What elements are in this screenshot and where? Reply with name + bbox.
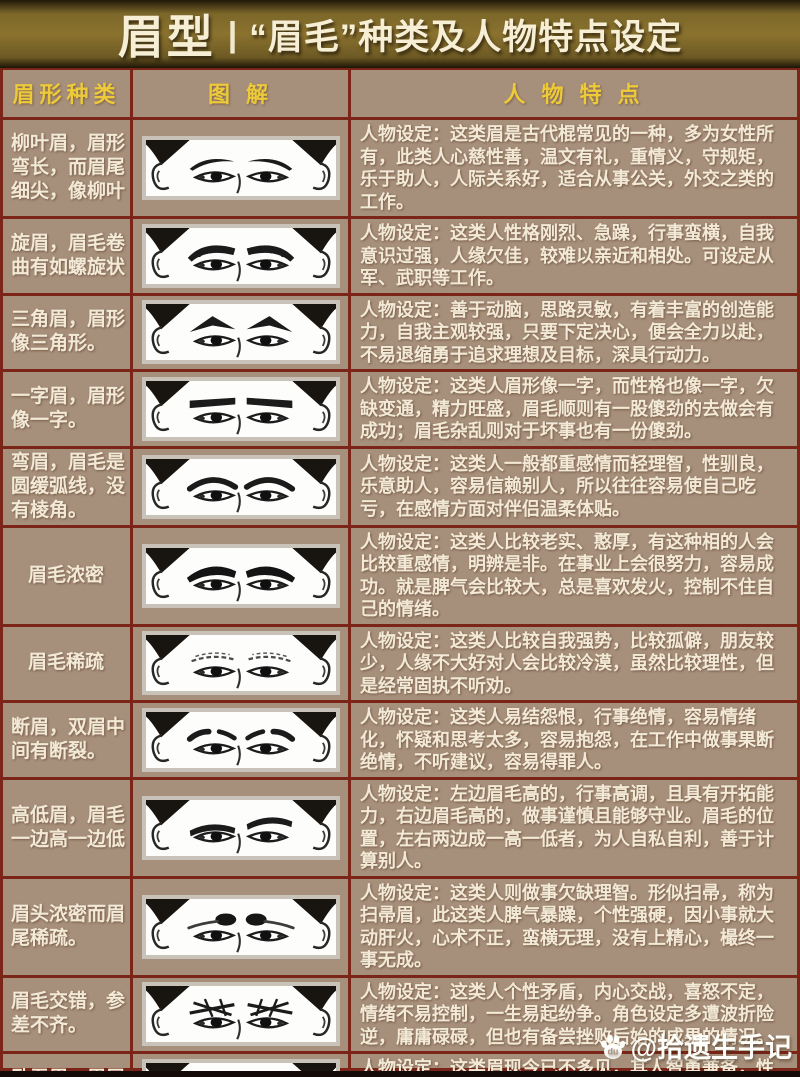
character-traits-text: 人物设定：善于动脑，思路灵敏，有着丰富的创造能力，自我主观较强，只要下定决心，便… <box>348 296 797 370</box>
face-sketch-icon <box>146 548 336 604</box>
eyebrow-illustration <box>130 449 348 525</box>
column-header-traits: 人 物 特 点 <box>348 70 797 117</box>
face-sketch-icon <box>146 304 336 360</box>
character-traits-text: 人物设定：这类人一般都重感情而轻理智，性驯良，乐意助人，容易信赖别人，所以往往容… <box>348 449 797 525</box>
face-sketch-icon <box>146 140 336 196</box>
table-row: 断眉，双眉中间有断裂。人物设定：这类人易结怨恨，行事绝情，容易情绪化，怀疑和思考… <box>3 703 797 780</box>
face-sketch-icon <box>146 986 336 1042</box>
character-traits-text: 人物设定：这类人比较自我强势，比较孤僻，朋友较少，人缘不大好对人会比较冷漠，虽然… <box>348 627 797 701</box>
eyebrow-type-label: 旋眉，眉毛卷曲有如螺旋状 <box>3 219 130 293</box>
face-sketch-icon <box>146 800 336 856</box>
table-row: 三角眉，眉形像三角形。人物设定：善于动脑，思路灵敏，有着丰富的创造能力，自我主观… <box>3 296 797 373</box>
title-separator: | <box>228 16 238 55</box>
table-row: 一字眉，眉形像一字。人物设定：这类人眉形像一字，而性格也像一字，欠缺变通，精力旺… <box>3 372 797 449</box>
face-sketch-icon <box>146 899 336 955</box>
svg-text:du: du <box>607 1046 618 1056</box>
table-body: 柳叶眉，眉形弯长，而眉尾细尖，像柳叶人物设定：这类眉是古代棍常见的一种，多为女性… <box>3 120 797 1077</box>
eyebrow-table: 眉形种类 图 解 人 物 特 点 柳叶眉，眉形弯长，而眉尾细尖，像柳叶人物设定：… <box>0 68 800 1071</box>
page-title-secondary: “眉毛”种类及人物特点设定 <box>249 9 682 60</box>
eyebrow-illustration <box>130 879 348 975</box>
eyebrow-type-label: 眉毛稀疏 <box>3 627 130 701</box>
eyebrow-illustration <box>130 372 348 446</box>
eyebrow-type-label: 一字眉，眉形像一字。 <box>3 372 130 446</box>
watermark-handle: @拾遗生手记 <box>631 1026 792 1065</box>
character-traits-text: 人物设定：这类人易结怨恨，行事绝情，容易情绪化，怀疑和思考太多，容易抱怨，在工作… <box>348 703 797 777</box>
face-sketch-icon <box>146 228 336 284</box>
face-sketch-icon <box>146 712 336 768</box>
face-sketch-icon <box>146 459 336 515</box>
table-row: 旋眉，眉毛卷曲有如螺旋状人物设定：这类人性格刚烈、急躁，行事蛮横，自我意识过强，… <box>3 219 797 296</box>
eyebrow-illustration <box>130 780 348 876</box>
eyebrow-illustration <box>130 978 348 1052</box>
character-traits-text: 人物设定：这类眉是古代棍常见的一种，多为女性所有，此类人心慈性善，温文有礼，重情… <box>348 120 797 216</box>
table-header-row: 眉形种类 图 解 人 物 特 点 <box>3 70 797 120</box>
table-row: 眉毛浓密人物设定：这类人比较老实、憨厚，有这种相的人会比较重感情，明辨是非。在事… <box>3 528 797 627</box>
eyebrow-illustration <box>130 627 348 701</box>
eyebrow-type-label: 弯眉，眉毛是圆缓弧线，没有棱角。 <box>3 449 130 525</box>
eyebrow-illustration <box>130 296 348 370</box>
eyebrow-type-label: 三角眉，眉形像三角形。 <box>3 296 130 370</box>
bottom-strip <box>0 1071 800 1077</box>
character-traits-text: 人物设定：这类人比较老实、憨厚，有这种相的人会比较重感情，明辨是非。在事业上会很… <box>348 528 797 624</box>
eyebrow-type-label: 眉头浓密而眉尾稀疏。 <box>3 879 130 975</box>
eyebrow-type-label: 柳叶眉，眉形弯长，而眉尾细尖，像柳叶 <box>3 120 130 216</box>
eyebrow-illustration <box>130 120 348 216</box>
face-sketch-icon <box>146 381 336 437</box>
character-traits-text: 人物设定：这类人眉形像一字，而性格也像一字，欠缺变通，精力旺盛，眉毛顺则有一股傻… <box>348 372 797 446</box>
eyebrow-type-label: 断眉，双眉中间有断裂。 <box>3 703 130 777</box>
table-row: 眉头浓密而眉尾稀疏。人物设定：这类人则做事欠缺理智。形似扫帚，称为扫帚眉，此这类… <box>3 879 797 978</box>
page-title-primary: 眉型 <box>118 1 216 67</box>
table-row: 高低眉，眉毛一边高一边低人物设定：左边眉毛高的，行事高调，且具有开拓能力，右边眉… <box>3 780 797 879</box>
character-traits-text: 人物设定：这类人则做事欠缺理智。形似扫帚，称为扫帚眉，此这类人脾气暴躁，个性强硬… <box>348 879 797 975</box>
column-header-type: 眉形种类 <box>3 70 130 117</box>
character-traits-text: 人物设定：左边眉毛高的，行事高调，且具有开拓能力，右边眉毛高的，做事谨慎且能够守… <box>348 780 797 876</box>
eyebrow-illustration <box>130 219 348 293</box>
eyebrow-illustration <box>130 703 348 777</box>
eyebrow-type-label: 高低眉，眉毛一边高一边低 <box>3 780 130 876</box>
table-row: 弯眉，眉毛是圆缓弧线，没有棱角。人物设定：这类人一般都重感情而轻理智，性驯良，乐… <box>3 449 797 528</box>
table-row: 眉毛稀疏人物设定：这类人比较自我强势，比较孤僻，朋友较少，人缘不大好对人会比较冷… <box>3 627 797 704</box>
eyebrow-illustration <box>130 528 348 624</box>
watermark: du @拾遗生手记 <box>598 1026 792 1065</box>
eyebrow-type-label: 眉毛浓密 <box>3 528 130 624</box>
title-bar: 眉型 | “眉毛”种类及人物特点设定 <box>0 0 800 68</box>
table-row: 柳叶眉，眉形弯长，而眉尾细尖，像柳叶人物设定：这类眉是古代棍常见的一种，多为女性… <box>3 120 797 219</box>
column-header-diagram: 图 解 <box>130 70 348 117</box>
eyebrow-type-label: 眉毛交错，参差不齐。 <box>3 978 130 1052</box>
face-sketch-icon <box>146 635 336 691</box>
baidu-paw-icon: du <box>598 1031 628 1061</box>
infographic-page: 眉型 | “眉毛”种类及人物特点设定 眉形种类 图 解 人 物 特 点 柳叶眉，… <box>0 0 800 1077</box>
character-traits-text: 人物设定：这类人性格刚烈、急躁，行事蛮横，自我意识过强，人缘欠佳，较难以亲近和相… <box>348 219 797 293</box>
